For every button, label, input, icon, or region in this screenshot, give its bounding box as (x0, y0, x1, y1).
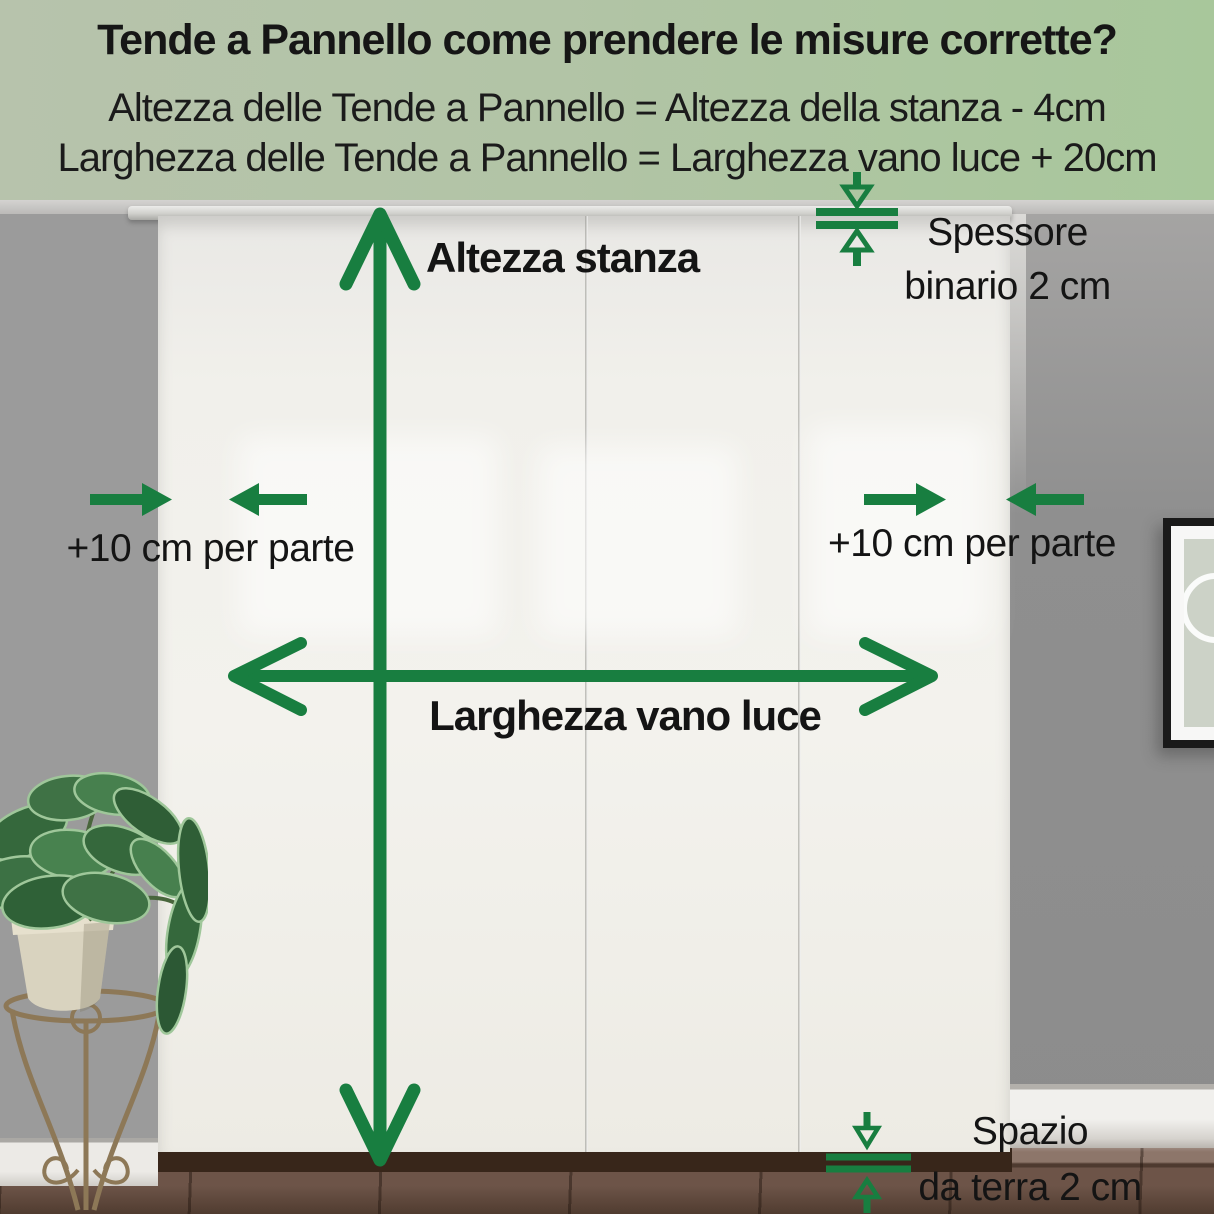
side-margin-right-label: +10 cm per parte (802, 522, 1142, 566)
rail-thickness-label: Spessore binario 2 cm (880, 206, 1135, 314)
curtain-sheen (538, 446, 738, 636)
picture-frame (1163, 518, 1214, 748)
rail-thickness-line1: Spessore (927, 211, 1088, 254)
side-margin-left-label: +10 cm per parte (38, 527, 383, 571)
room-height-label: Altezza stanza (426, 234, 699, 282)
floor-gap-label: Spazio da terra 2 cm (905, 1104, 1155, 1214)
plant-stand (6, 991, 166, 1210)
page-title: Tende a Pannello come prendere le misure… (0, 16, 1214, 65)
rail-thickness-line2: binario 2 cm (904, 265, 1110, 308)
formula-height: Altezza delle Tende a Pannello = Altezza… (0, 86, 1214, 131)
frame-art-circle (1184, 573, 1214, 643)
opening-width-label: Larghezza vano luce (424, 692, 826, 740)
curtain-seam (377, 216, 380, 1152)
floor-gap-line1: Spazio (972, 1110, 1088, 1153)
frame-art (1184, 539, 1214, 727)
curtain-seam (798, 216, 801, 1152)
potted-plant (0, 740, 208, 1214)
header-banner: Tende a Pannello come prendere le misure… (0, 0, 1214, 200)
curtain-seam (585, 216, 588, 1152)
floor-gap-line2: da terra 2 cm (918, 1166, 1141, 1209)
infographic-canvas: Tende a Pannello come prendere le misure… (0, 0, 1214, 1214)
formula-width: Larghezza delle Tende a Pannello = Largh… (0, 136, 1214, 181)
curtain-panels (158, 216, 1010, 1152)
